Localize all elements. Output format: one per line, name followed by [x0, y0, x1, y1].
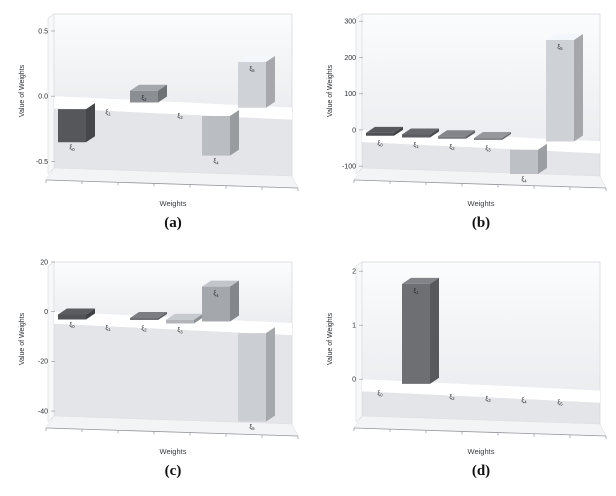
- panel-b: 3002001000-100Value of Weightsξ0ξ1ξ2ξ3ξ4…: [308, 0, 616, 248]
- bar-0: [366, 133, 394, 136]
- bar-2: [130, 318, 158, 320]
- y-tick-label: -40: [38, 408, 48, 415]
- bar-1: [402, 284, 430, 384]
- bar-5: [546, 40, 574, 141]
- back-wall-upper: [362, 262, 600, 391]
- figure-weights-bar-charts: 0.50.0-0.5Value of Weightsξ0ξ1ξ2ξ3ξ4ξ5 W…: [0, 0, 616, 496]
- panel-c: 200-20-40Value of Weightsξ0ξ1ξ2ξ3ξ4ξ5 We…: [0, 248, 308, 496]
- y-tick-label: 300: [344, 19, 356, 26]
- x-axis-label: Weights: [0, 447, 308, 456]
- x-axis-label: Weights: [0, 199, 308, 208]
- bar-2: [438, 136, 466, 139]
- bar-4: [510, 150, 538, 174]
- bar-5: [238, 333, 266, 421]
- bar-0: [58, 315, 86, 320]
- y-axis-title: Value of Weights: [327, 64, 334, 117]
- bar3d-chart-d: 210Value of Weightsξ0ξ1ξ2ξ3ξ4ξ5: [308, 248, 616, 444]
- left-wall: [48, 14, 54, 174]
- bar-side-face: [266, 327, 275, 421]
- y-tick-label: 20: [40, 259, 48, 266]
- x-axis-label: Weights: [308, 199, 616, 208]
- left-wall: [356, 262, 362, 422]
- y-axis-title: Value of Weights: [19, 64, 26, 117]
- y-tick-label: 2: [352, 268, 356, 275]
- bar3d-chart-a: 0.50.0-0.5Value of Weightsξ0ξ1ξ2ξ3ξ4ξ5: [0, 0, 308, 196]
- bar3d-chart-b: 3002001000-100Value of Weightsξ0ξ1ξ2ξ3ξ4…: [308, 0, 616, 196]
- bar3d-chart-c: 200-20-40Value of Weightsξ0ξ1ξ2ξ3ξ4ξ5: [0, 248, 308, 444]
- y-tick-label: 100: [344, 91, 356, 98]
- bar-side-face: [86, 103, 95, 142]
- bar-3: [474, 138, 502, 140]
- panel-caption: (c): [0, 463, 308, 480]
- y-tick-label: 0: [352, 377, 356, 384]
- y-tick-label: -0.5: [36, 159, 48, 166]
- panel-d: 210Value of Weightsξ0ξ1ξ2ξ3ξ4ξ5 Weights …: [308, 248, 616, 496]
- panel-caption: (b): [308, 215, 616, 232]
- bar-1: [402, 135, 430, 138]
- bar-side-face: [430, 278, 439, 384]
- y-tick-label: 0.5: [38, 28, 48, 35]
- y-tick-label: 0: [352, 127, 356, 134]
- bar-side-face: [266, 56, 275, 108]
- panel-caption: (a): [0, 215, 308, 232]
- left-wall: [48, 262, 54, 422]
- y-tick-label: 200: [344, 55, 356, 62]
- y-tick-label: 0.0: [38, 94, 48, 101]
- bar-side-face: [574, 34, 583, 141]
- bar-side-face: [230, 110, 239, 156]
- y-axis-title: Value of Weights: [19, 312, 26, 365]
- panel-a: 0.50.0-0.5Value of Weightsξ0ξ1ξ2ξ3ξ4ξ5 W…: [0, 0, 308, 248]
- panel-caption: (d): [308, 463, 616, 480]
- bar-0: [58, 109, 86, 142]
- bar-side-face: [230, 281, 239, 322]
- bar-4: [202, 116, 230, 156]
- bar-3: [166, 320, 194, 324]
- y-axis-title: Value of Weights: [327, 312, 334, 365]
- y-tick-label: -100: [342, 163, 356, 170]
- y-tick-label: 0: [44, 309, 48, 316]
- y-tick-label: -20: [38, 359, 48, 366]
- y-tick-label: 1: [352, 323, 356, 330]
- x-axis-label: Weights: [308, 447, 616, 456]
